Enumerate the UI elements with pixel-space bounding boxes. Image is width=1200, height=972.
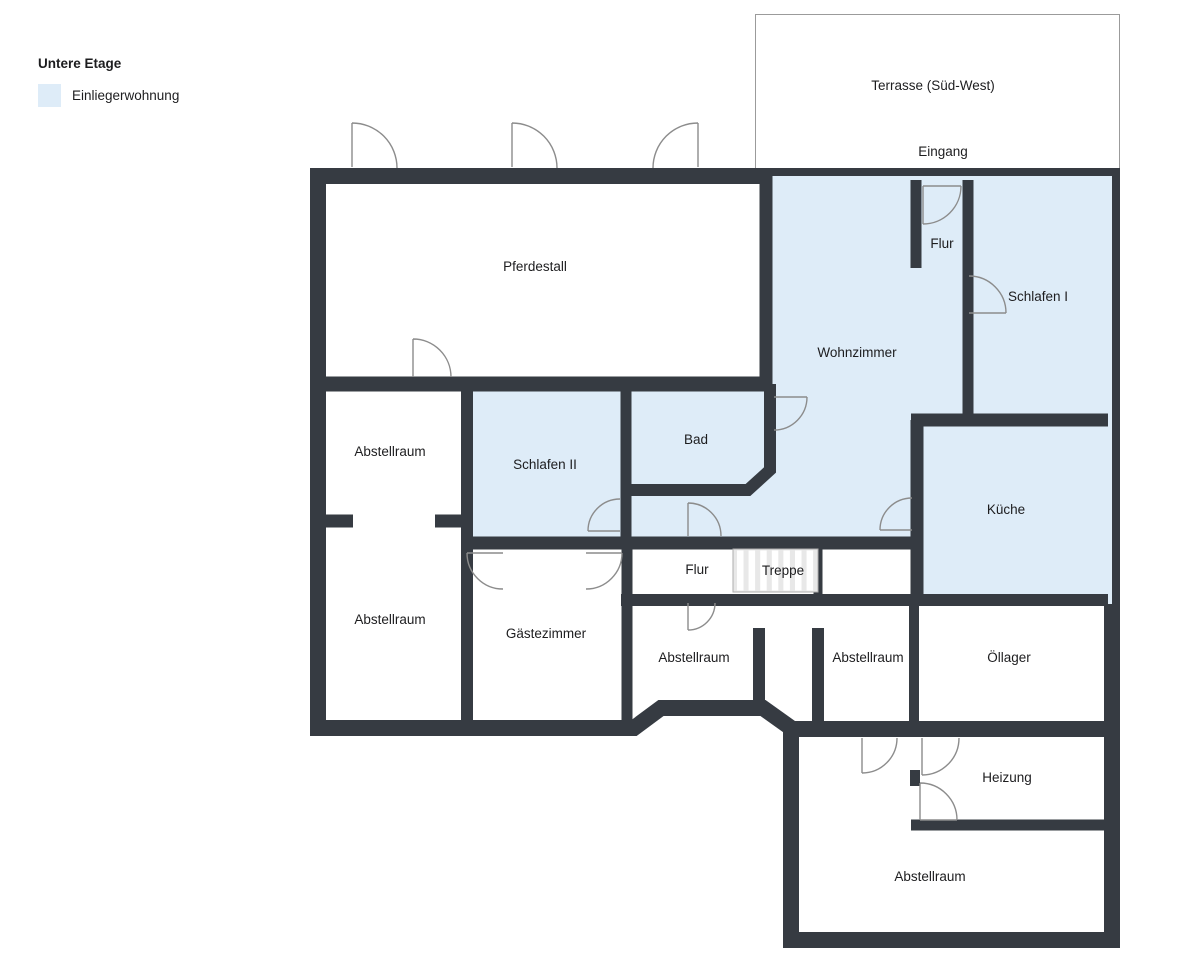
- legend-item-label: Einliegerwohnung: [72, 88, 179, 103]
- terrace: Terrasse (Süd-West) Eingang: [756, 15, 1120, 169]
- label-heizung: Heizung: [982, 770, 1032, 785]
- label-flur-oben: Flur: [930, 236, 954, 251]
- label-abstellraum-rechts: Abstellraum: [832, 650, 903, 665]
- door-exterior-1: [352, 123, 397, 168]
- door-exterior-3: [653, 123, 698, 168]
- legend: Untere Etage Einliegerwohnung: [38, 56, 179, 107]
- terrace-label: Terrasse (Süd-West): [871, 78, 995, 93]
- door-exterior-2: [512, 123, 557, 168]
- label-abstellraum-links-oben: Abstellraum: [354, 444, 425, 459]
- legend-title: Untere Etage: [38, 56, 122, 71]
- label-abstellraum-mitte: Abstellraum: [658, 650, 729, 665]
- entrance-label: Eingang: [918, 144, 968, 159]
- label-flur-unten: Flur: [685, 562, 709, 577]
- label-pferdestall: Pferdestall: [503, 259, 567, 274]
- label-abstellraum-sued: Abstellraum: [894, 869, 965, 884]
- label-abstellraum-links-unten: Abstellraum: [354, 612, 425, 627]
- label-bad: Bad: [684, 432, 708, 447]
- floor-plan-canvas: Terrasse (Süd-West) Eingang: [0, 0, 1200, 972]
- label-schlafen1: Schlafen I: [1008, 289, 1068, 304]
- label-treppe: Treppe: [762, 563, 804, 578]
- floor-plan-page: Terrasse (Süd-West) Eingang: [0, 0, 1200, 972]
- label-oellager: Öllager: [987, 650, 1031, 665]
- legend-swatch: [38, 84, 61, 107]
- label-wohnzimmer: Wohnzimmer: [817, 345, 897, 360]
- label-schlafen2: Schlafen II: [513, 457, 577, 472]
- label-gaestezimmer: Gästezimmer: [506, 626, 587, 641]
- label-kueche: Küche: [987, 502, 1025, 517]
